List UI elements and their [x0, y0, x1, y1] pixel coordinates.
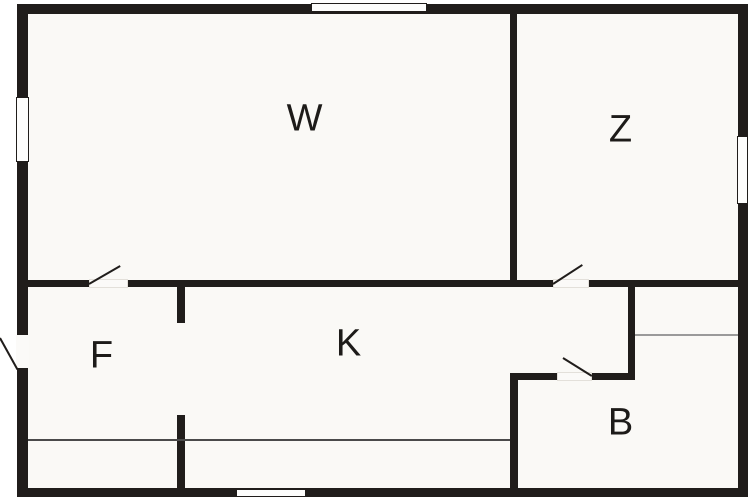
wall-main-divider	[28, 280, 738, 287]
line-under-f-k	[28, 439, 510, 441]
wall-outer-left	[17, 4, 28, 497]
room-label-z: Z	[609, 109, 633, 152]
wall-w-z-divider	[510, 14, 517, 280]
room-label-f: F	[90, 335, 114, 378]
window-top	[311, 3, 427, 12]
wall-f-k-divider-upper	[177, 287, 185, 323]
floor-plan: W Z F K B	[0, 0, 750, 500]
wall-k-b-vertical	[628, 287, 635, 373]
window-bottom	[236, 489, 306, 497]
room-label-w: W	[287, 98, 324, 141]
wall-outer-bottom	[17, 488, 748, 497]
line-in-b-strip	[635, 334, 738, 336]
floor-area	[17, 4, 748, 497]
wall-b-left	[510, 380, 518, 488]
wall-outer-right	[738, 4, 748, 497]
door-opening-entry	[16, 335, 29, 368]
window-right	[737, 136, 748, 204]
room-label-b: B	[608, 402, 634, 445]
window-left	[16, 97, 29, 162]
wall-f-k-divider-lower	[177, 415, 185, 488]
room-label-k: K	[336, 323, 362, 366]
